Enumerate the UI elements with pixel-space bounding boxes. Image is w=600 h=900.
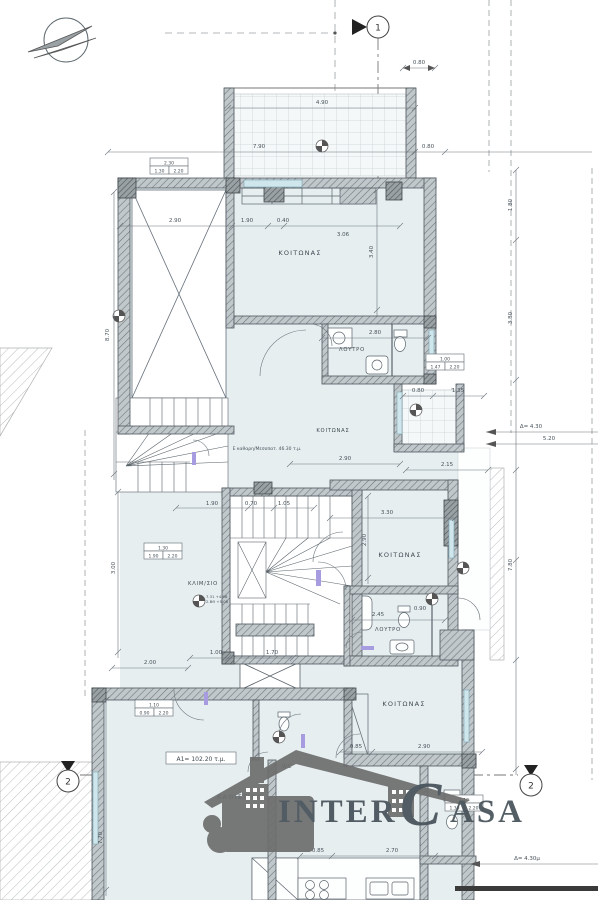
dim-label: 4.90 <box>316 100 329 106</box>
dim-box-top: 2.30 <box>164 161 174 167</box>
kitchen-fixtures <box>252 858 422 900</box>
upper-staircase <box>116 398 228 492</box>
dim-label: 0.85 <box>312 848 325 854</box>
dim-label: 2.00 <box>144 660 157 666</box>
room-label-bath-top: ΛΟΥΤΡΟ <box>339 347 365 353</box>
floor-plan-drawing: 0.80 4.90 7.90 0.80 2.90 1.90 0.40 3.06 … <box>0 0 600 900</box>
dim-label: 1.90 <box>206 501 219 507</box>
dim-label: 3.80 <box>508 311 514 324</box>
dim-label-delta-mid: Δ= 4.30 <box>520 424 543 430</box>
dim-label: 0.80 <box>413 60 426 66</box>
dim-box-a: 1.47 <box>430 365 440 371</box>
dim-box-a: 0.90 <box>139 711 149 717</box>
dim-label: 0.85 <box>350 744 363 750</box>
room-label-bedroom-bottom: ΚΟΙΤΩΝΑΣ <box>382 700 425 708</box>
dim-label-520: 5.20 <box>543 436 556 442</box>
dim-label: 2.15 <box>441 462 454 468</box>
dim-label: 0.80 <box>412 388 425 394</box>
dim-box: 2.30 1.30 2.20 <box>150 158 188 175</box>
dim-label: 3.00 <box>111 561 117 574</box>
dim-label: 2.80 <box>369 330 382 336</box>
dim-box-b: 2.20 <box>449 365 459 371</box>
dim-box-top: 1.00 <box>440 357 450 363</box>
dim-box: 1.00 1.47 2.20 <box>426 354 464 371</box>
elevator-shaft <box>240 662 300 690</box>
dim-label: 3.30 <box>381 510 394 516</box>
dim-box-b: 2.20 <box>173 169 183 175</box>
dim-label: 3.40 <box>369 245 375 258</box>
axis-2-left-label: 2 <box>65 778 71 788</box>
dim-label: 1.80 <box>508 198 514 211</box>
area-label-a1: A1= 102.20 τ.μ. <box>176 756 225 763</box>
logo-text-asa: ASA <box>450 794 525 830</box>
dim-label: 1.35 <box>452 388 465 394</box>
dim-label: 2.70 <box>386 848 399 854</box>
dim-label: 2.90 <box>362 533 368 546</box>
dim-label: 7.70 <box>98 831 104 844</box>
dim-label: 7.80 <box>508 558 514 571</box>
logo-text-inter: INTER <box>278 794 398 830</box>
room-label-bath-mid: ΛΟΥΤΡΟ <box>375 627 401 633</box>
dim-label: 2.90 <box>339 456 352 462</box>
dim-label: 8.70 <box>105 328 111 341</box>
dim-label: 2.90 <box>418 744 431 750</box>
room-label-bedroom-mid: ΚΟΙΤΩΝΑΣ <box>378 551 421 559</box>
dim-label: 7.90 <box>253 144 266 150</box>
dim-label: 2.45 <box>372 612 385 618</box>
dim-label: 0.40 <box>277 218 290 224</box>
dim-label: 1.05 <box>278 501 291 507</box>
room-label-bedroom-mid-upper: ΚΟΙΤΩΝΑΣ <box>316 428 349 434</box>
dim-box: 1.10 0.90 2.20 <box>135 700 173 717</box>
axis-1-label: 1 <box>375 24 381 34</box>
dim-box-a: 1.30 <box>154 169 164 175</box>
dim-label: 3.06 <box>337 232 350 238</box>
dim-label: 0.90 <box>414 606 427 612</box>
dim-box-b: 2.20 <box>158 711 168 717</box>
dim-label: 0.70 <box>245 501 258 507</box>
room-label-bedroom-top: ΚΟΙΤΩΝΑΣ <box>278 249 321 257</box>
dim-label: 1.90 <box>241 218 254 224</box>
dim-box-top: 1.30 <box>158 546 168 552</box>
dim-box-top: 1.10 <box>149 703 159 709</box>
level-text-2: Σ.ΒΘ +5.08 <box>206 599 229 604</box>
logo-text-c: C <box>400 771 442 839</box>
dim-label-delta-low: Δ= 4.30μ <box>514 856 540 862</box>
dim-label: 2.90 <box>169 218 182 224</box>
dim-box-a: 1.90 <box>148 554 158 560</box>
dim-box: 1.30 1.90 2.20 <box>144 543 182 560</box>
area-label-mezzanine: Ε καθαρη/Μεσοπατ. 46.30 τ.μ. <box>233 446 302 452</box>
dim-label: 1.70 <box>266 650 279 656</box>
room-label-stairwell: ΚΛΙΜ/ΣΙΟ <box>188 581 218 587</box>
dim-box-b: 2.20 <box>167 554 177 560</box>
dim-label: 0.80 <box>422 144 435 150</box>
axis-2-right-label: 2 <box>528 782 534 792</box>
dim-label: 1.00 <box>210 650 223 656</box>
floor-plan-page: 0.80 4.90 7.90 0.80 2.90 1.90 0.40 3.06 … <box>0 0 600 900</box>
north-arrow-icon <box>28 18 96 62</box>
